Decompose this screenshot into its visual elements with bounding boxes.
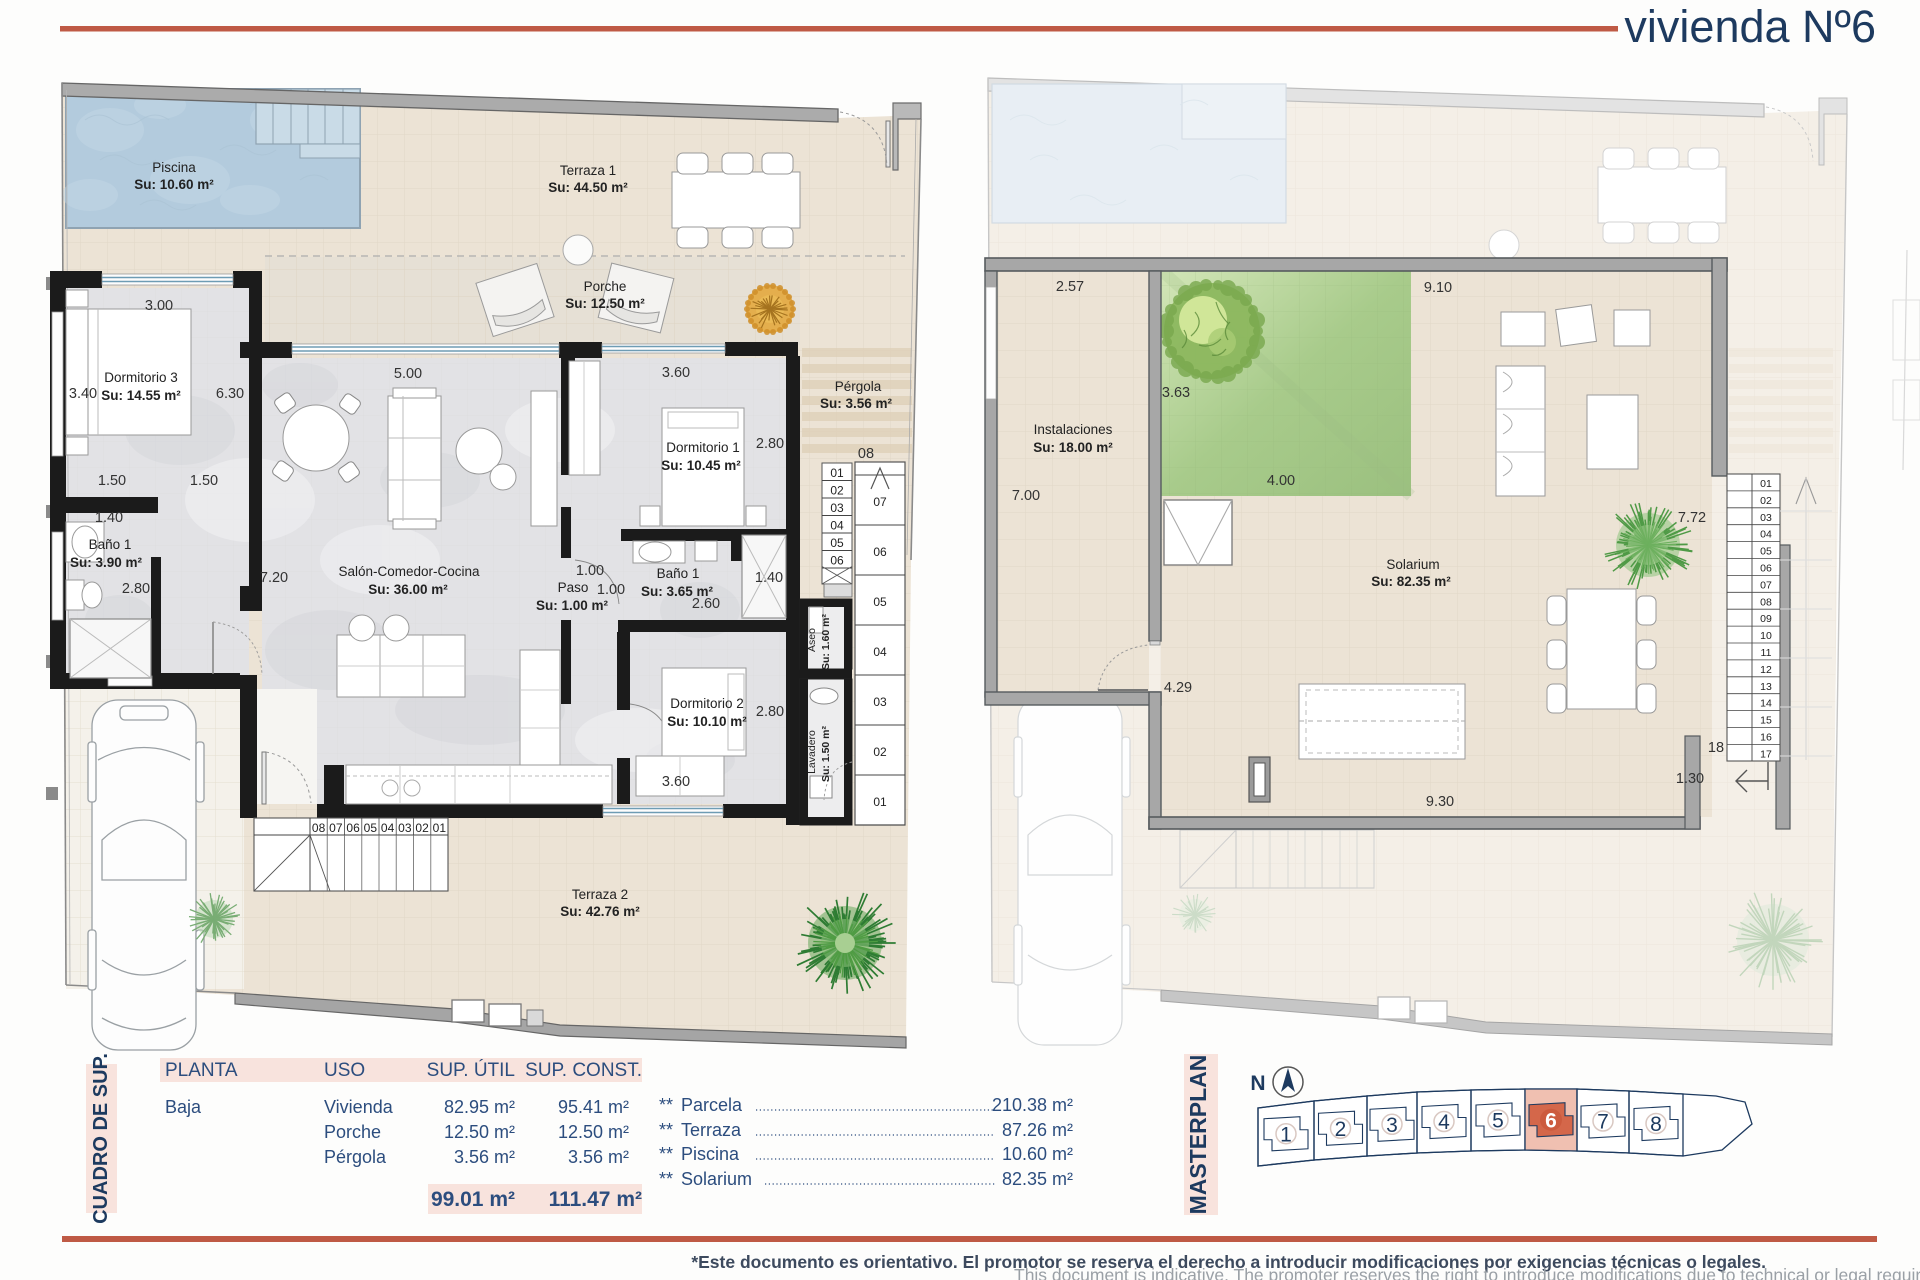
svg-text:Terraza: Terraza: [681, 1120, 742, 1140]
svg-text:Instalaciones: Instalaciones: [1034, 422, 1113, 437]
svg-text:95.41 m²: 95.41 m²: [558, 1097, 629, 1117]
svg-text:Vivienda: Vivienda: [324, 1097, 394, 1117]
svg-text:06: 06: [830, 554, 844, 568]
svg-text:Porche: Porche: [584, 279, 627, 294]
svg-text:6: 6: [1545, 1109, 1557, 1132]
svg-text:10: 10: [1760, 630, 1772, 642]
svg-text:99.01 m²: 99.01 m²: [431, 1188, 515, 1211]
svg-text:13: 13: [1760, 681, 1772, 693]
svg-text:87.26 m²: 87.26 m²: [1002, 1120, 1073, 1140]
svg-text:Baja: Baja: [165, 1097, 202, 1117]
svg-text:02: 02: [873, 745, 887, 759]
svg-text:16: 16: [1760, 732, 1772, 744]
svg-text:05: 05: [364, 821, 378, 835]
svg-text:Su: 82.35 m²: Su: 82.35 m²: [1371, 574, 1451, 589]
svg-text:7.20: 7.20: [260, 570, 288, 586]
svg-text:3: 3: [1386, 1114, 1398, 1137]
svg-text:7.72: 7.72: [1678, 510, 1706, 526]
svg-text:08: 08: [858, 446, 874, 462]
svg-text:Terraza 1: Terraza 1: [560, 163, 616, 178]
svg-text:Piscina: Piscina: [681, 1144, 740, 1164]
svg-text:01: 01: [1760, 478, 1772, 490]
svg-text:12: 12: [1760, 664, 1772, 676]
svg-text:vivienda Nº6: vivienda Nº6: [1624, 1, 1876, 52]
svg-text:Aseo: Aseo: [806, 628, 818, 652]
svg-text:8: 8: [1650, 1113, 1662, 1136]
svg-text:9.30: 9.30: [1426, 794, 1454, 810]
svg-text:01: 01: [433, 821, 447, 835]
svg-text:09: 09: [1760, 613, 1772, 625]
svg-text:07: 07: [1760, 579, 1772, 591]
svg-text:12.50 m²: 12.50 m²: [558, 1122, 629, 1142]
svg-text:Su: 12.50 m²: Su: 12.50 m²: [565, 296, 645, 311]
svg-text:02: 02: [1760, 495, 1772, 507]
svg-text:05: 05: [830, 536, 844, 550]
svg-text:MASTERPLAN: MASTERPLAN: [1185, 1055, 1211, 1215]
svg-text:05: 05: [1760, 546, 1772, 558]
svg-text:2.80: 2.80: [756, 704, 784, 720]
svg-text:04: 04: [830, 519, 844, 533]
svg-text:02: 02: [415, 821, 429, 835]
svg-text:5.00: 5.00: [394, 366, 422, 382]
svg-text:Salón-Comedor-Cocina: Salón-Comedor-Cocina: [338, 564, 480, 579]
svg-text:05: 05: [873, 595, 887, 609]
svg-text:111.47 m²: 111.47 m²: [549, 1188, 642, 1211]
svg-text:Su: 1.50 m²: Su: 1.50 m²: [820, 725, 832, 782]
svg-text:1.30: 1.30: [1676, 771, 1704, 787]
svg-text:Su: 1.60 m²: Su: 1.60 m²: [820, 613, 832, 670]
svg-text:06: 06: [346, 821, 360, 835]
svg-text:Baño 1: Baño 1: [89, 537, 132, 552]
svg-text:03: 03: [1760, 512, 1772, 524]
svg-text:04: 04: [1760, 529, 1772, 541]
svg-text:Su: 10.60 m²: Su: 10.60 m²: [134, 177, 214, 192]
svg-text:Pérgola: Pérgola: [835, 379, 882, 394]
svg-text:Su: 10.10 m²: Su: 10.10 m²: [667, 714, 747, 729]
svg-text:03: 03: [873, 695, 887, 709]
svg-text:14: 14: [1760, 698, 1772, 710]
svg-text:**: **: [659, 1169, 673, 1189]
svg-text:Su: 3.90 m²: Su: 3.90 m²: [70, 555, 143, 570]
svg-text:Su: 1.00 m²: Su: 1.00 m²: [536, 598, 609, 613]
svg-text:CUADRO DE SUP.: CUADRO DE SUP.: [90, 1053, 112, 1224]
svg-text:2.57: 2.57: [1056, 279, 1084, 295]
svg-text:06: 06: [873, 545, 887, 559]
svg-text:1.50: 1.50: [190, 473, 218, 489]
svg-text:01: 01: [873, 795, 887, 809]
svg-text:3.56 m²: 3.56 m²: [568, 1147, 629, 1167]
svg-text:1.50: 1.50: [98, 473, 126, 489]
svg-text:9.10: 9.10: [1424, 280, 1452, 296]
svg-text:07: 07: [329, 821, 343, 835]
svg-text:Su: 3.56 m²: Su: 3.56 m²: [820, 396, 893, 411]
svg-text:3.00: 3.00: [145, 298, 173, 314]
svg-text:2.80: 2.80: [756, 436, 784, 452]
svg-text:82.35 m²: 82.35 m²: [1002, 1169, 1073, 1189]
svg-text:1.40: 1.40: [755, 570, 783, 586]
svg-text:3.63: 3.63: [1162, 385, 1190, 401]
svg-text:07: 07: [873, 495, 887, 509]
svg-text:2.60: 2.60: [692, 596, 720, 612]
svg-text:Solarium: Solarium: [1386, 557, 1439, 572]
svg-text:Solarium: Solarium: [681, 1169, 752, 1189]
svg-text:Su: 14.55 m²: Su: 14.55 m²: [101, 388, 181, 403]
svg-text:Su: 44.50 m²: Su: 44.50 m²: [548, 180, 628, 195]
svg-text:210.38 m²: 210.38 m²: [992, 1095, 1073, 1115]
svg-text:**: **: [659, 1095, 673, 1115]
svg-text:12.50 m²: 12.50 m²: [444, 1122, 515, 1142]
svg-text:PLANTA: PLANTA: [165, 1060, 238, 1081]
svg-text:3.60: 3.60: [662, 365, 690, 381]
svg-text:**: **: [659, 1144, 673, 1164]
svg-text:N: N: [1250, 1072, 1265, 1095]
svg-text:02: 02: [830, 484, 844, 498]
svg-text:Porche: Porche: [324, 1122, 381, 1142]
svg-text:3.60: 3.60: [662, 774, 690, 790]
svg-text:18: 18: [1708, 740, 1724, 756]
svg-text:82.95 m²: 82.95 m²: [444, 1097, 515, 1117]
svg-text:Su: 42.76 m²: Su: 42.76 m²: [560, 904, 640, 919]
svg-text:1.00: 1.00: [597, 582, 625, 598]
svg-text:08: 08: [1760, 596, 1772, 608]
svg-text:1.40: 1.40: [95, 510, 123, 526]
svg-text:Terraza 2: Terraza 2: [572, 887, 628, 902]
svg-text:04: 04: [381, 821, 395, 835]
svg-text:Su: 18.00 m²: Su: 18.00 m²: [1033, 440, 1113, 455]
svg-text:10.60 m²: 10.60 m²: [1002, 1144, 1073, 1164]
svg-text:Dormitorio 1: Dormitorio 1: [666, 440, 740, 455]
svg-text:11: 11: [1761, 647, 1772, 659]
svg-text:4: 4: [1438, 1111, 1450, 1134]
svg-text:1.00: 1.00: [576, 563, 604, 579]
svg-text:Dormitorio 2: Dormitorio 2: [670, 696, 744, 711]
svg-text:01: 01: [830, 466, 844, 480]
svg-text:3.56 m²: 3.56 m²: [454, 1147, 515, 1167]
svg-text:1: 1: [1280, 1123, 1292, 1146]
svg-text:4.00: 4.00: [1267, 473, 1295, 489]
svg-text:15: 15: [1760, 715, 1772, 727]
svg-text:Su: 10.45 m²: Su: 10.45 m²: [661, 458, 741, 473]
svg-text:Parcela: Parcela: [681, 1095, 743, 1115]
svg-text:03: 03: [830, 501, 844, 515]
svg-text:Dormitorio 3: Dormitorio 3: [104, 370, 178, 385]
svg-text:Su: 36.00 m²: Su: 36.00 m²: [368, 582, 448, 597]
svg-text:SUP. CONST.: SUP. CONST.: [525, 1060, 642, 1081]
svg-text:SUP. ÚTIL: SUP. ÚTIL: [427, 1059, 515, 1081]
svg-text:Paso: Paso: [558, 580, 589, 595]
svg-text:Pérgola: Pérgola: [324, 1147, 387, 1167]
svg-text:2.80: 2.80: [122, 581, 150, 597]
svg-text:08: 08: [312, 821, 326, 835]
svg-text:Baño 1: Baño 1: [657, 566, 700, 581]
svg-text:This document is indicative. T: This document is indicative. The promote…: [1014, 1265, 1920, 1280]
svg-text:04: 04: [873, 645, 887, 659]
svg-text:2: 2: [1335, 1118, 1347, 1141]
svg-text:7.00: 7.00: [1012, 488, 1040, 504]
svg-text:Lavadero: Lavadero: [806, 730, 818, 774]
svg-text:5: 5: [1492, 1110, 1504, 1133]
svg-text:3.40: 3.40: [69, 386, 97, 402]
svg-text:Piscina: Piscina: [152, 160, 196, 175]
svg-text:**: **: [659, 1120, 673, 1140]
svg-text:4.29: 4.29: [1164, 680, 1192, 696]
svg-text:7: 7: [1597, 1111, 1609, 1134]
svg-text:03: 03: [398, 821, 412, 835]
svg-text:6.30: 6.30: [216, 386, 244, 402]
svg-text:06: 06: [1760, 563, 1772, 575]
svg-text:USO: USO: [324, 1060, 365, 1081]
svg-text:17: 17: [1760, 748, 1772, 760]
